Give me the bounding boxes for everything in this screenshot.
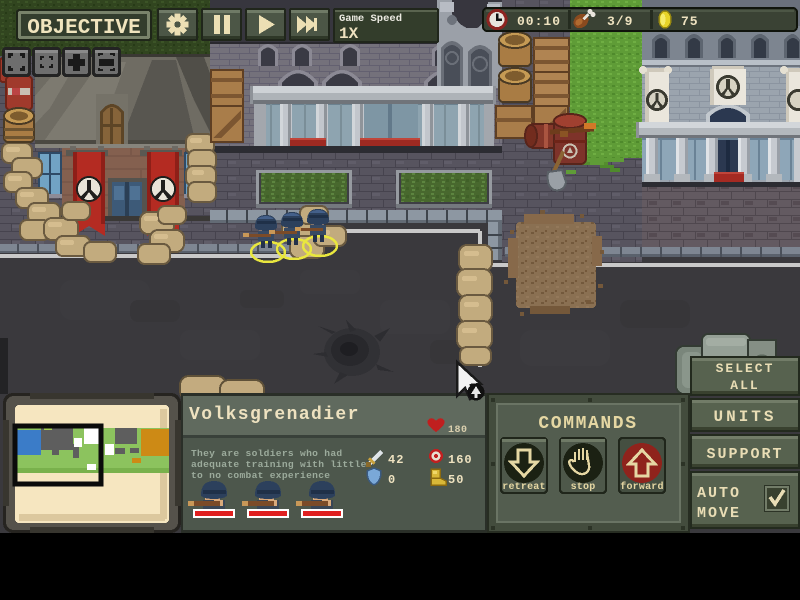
svg-text:to no combat experience: to no combat experience (191, 470, 330, 481)
svg-text:SELECT: SELECT (716, 361, 775, 376)
svg-text:UNITS: UNITS (713, 408, 776, 426)
svg-text:180: 180 (448, 425, 468, 436)
svg-text:160: 160 (448, 453, 473, 467)
svg-text:OBJECTIVE: OBJECTIVE (27, 17, 140, 40)
svg-text:SUPPORT: SUPPORT (706, 446, 783, 463)
svg-text:forward: forward (620, 481, 663, 493)
svg-text:0: 0 (388, 473, 396, 487)
svg-text:COMMANDS: COMMANDS (538, 414, 637, 434)
svg-text:MOVE: MOVE (697, 505, 741, 522)
svg-text:Game Speed: Game Speed (339, 13, 402, 25)
svg-text:Volksgrenadier: Volksgrenadier (189, 405, 360, 425)
svg-text:AUTO: AUTO (697, 485, 741, 502)
svg-text:1X: 1X (339, 25, 359, 43)
svg-text:retreat: retreat (502, 482, 545, 493)
svg-text:42: 42 (388, 453, 404, 467)
svg-text:stop: stop (571, 482, 596, 493)
svg-text:They are soldiers who had: They are soldiers who had (191, 448, 342, 459)
svg-text:00:10: 00:10 (517, 14, 561, 29)
svg-text:3/9: 3/9 (607, 14, 633, 29)
svg-text:ALL: ALL (730, 378, 759, 393)
svg-text:50: 50 (448, 473, 464, 487)
svg-text:75: 75 (681, 14, 699, 29)
svg-text:adequate training with little: adequate training with little (191, 459, 367, 470)
